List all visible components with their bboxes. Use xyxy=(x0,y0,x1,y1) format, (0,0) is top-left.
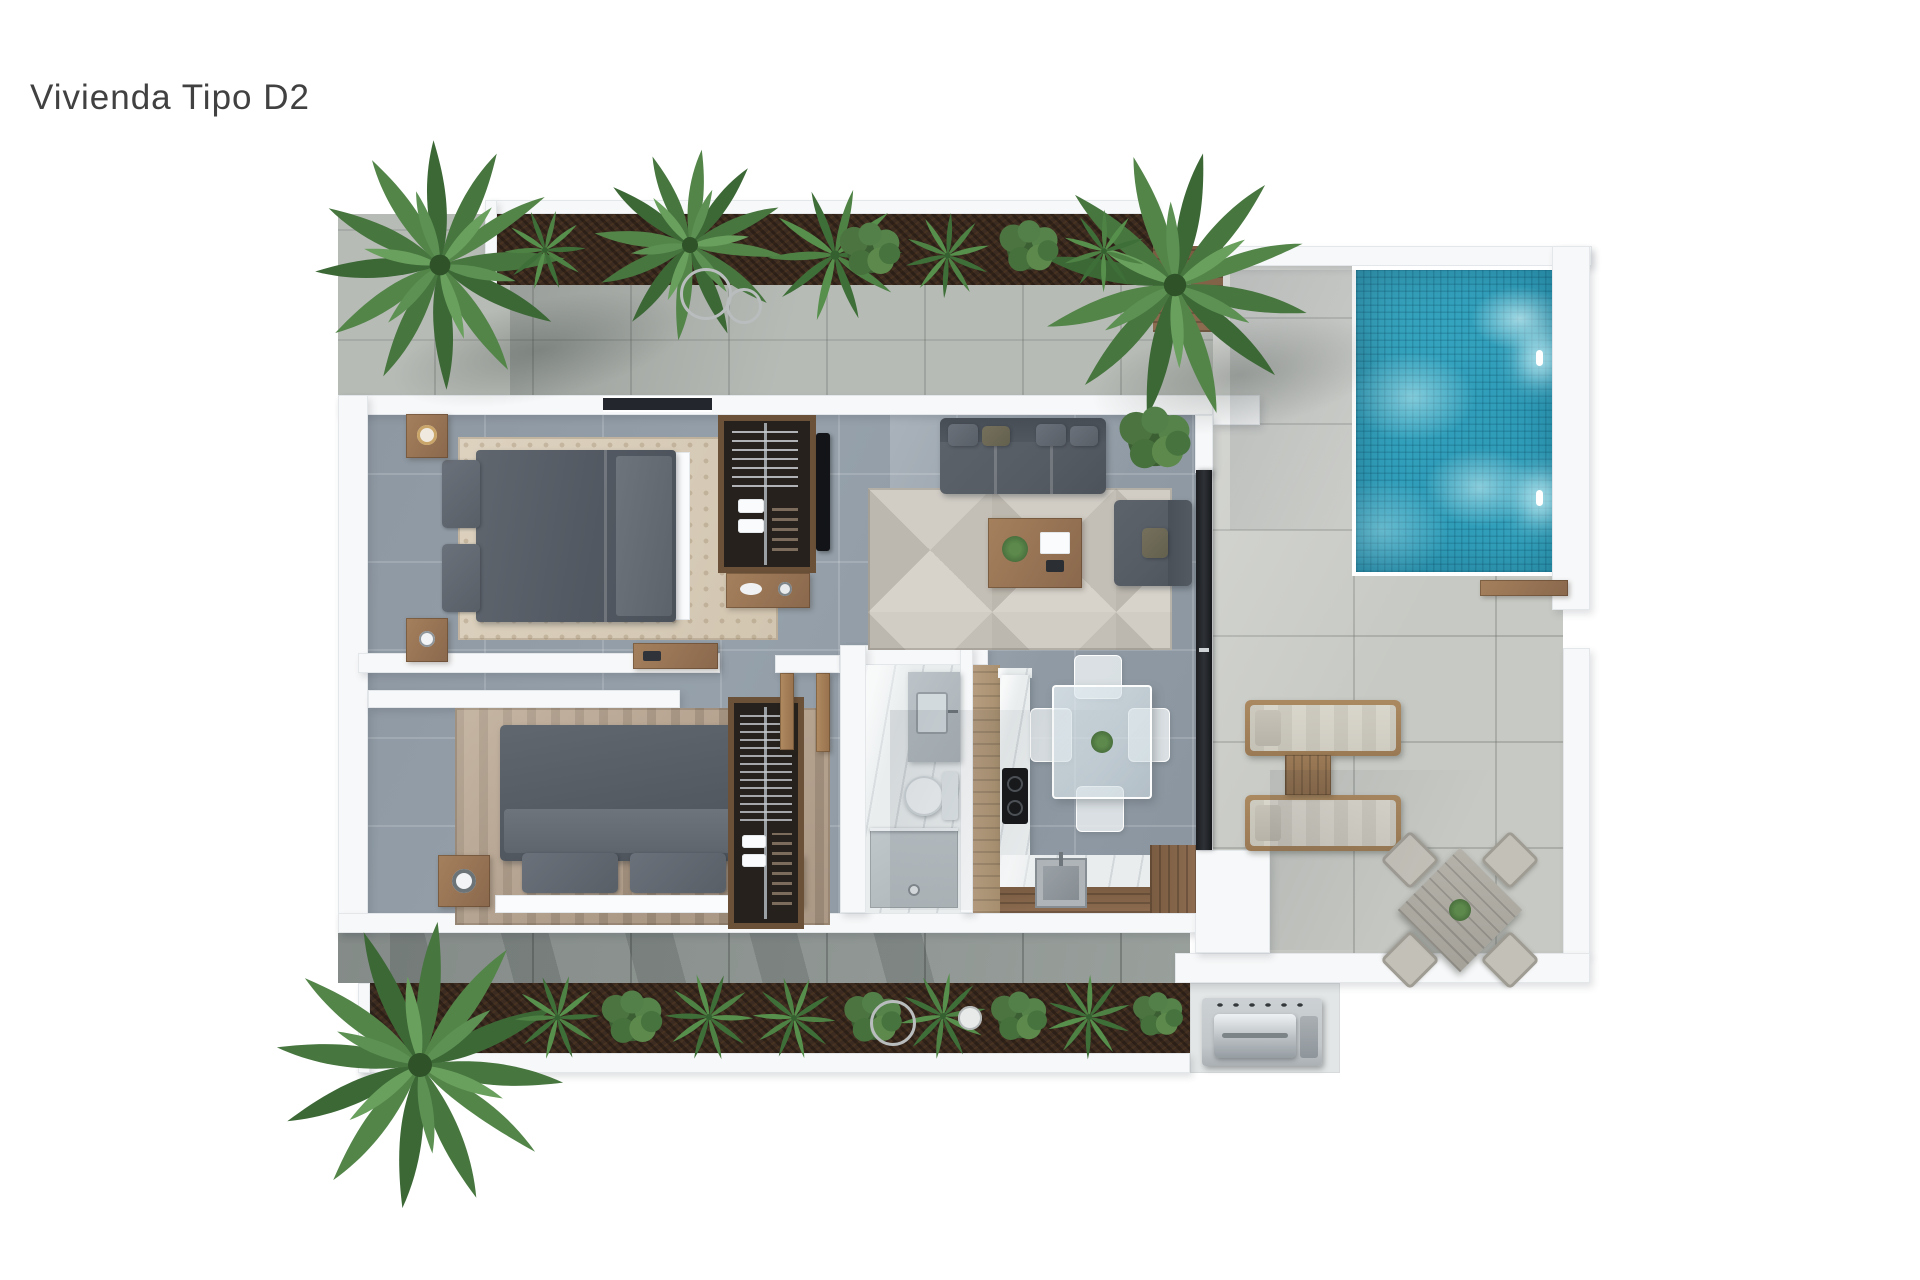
folded-towels xyxy=(738,519,764,533)
toilet-bowl xyxy=(904,776,944,816)
sun-lounger[interactable] xyxy=(1245,700,1401,756)
shrub xyxy=(1125,982,1191,1048)
pool-right-wall xyxy=(1552,246,1590,610)
pool-bench xyxy=(1480,580,1568,596)
kitchen-counter-end xyxy=(1150,845,1196,913)
bbq-lid xyxy=(1214,1014,1296,1058)
bathroom-vanity xyxy=(908,672,960,762)
bedroom1-window xyxy=(603,396,712,412)
bbq-handle xyxy=(1222,1033,1288,1038)
armchair xyxy=(1114,500,1192,586)
bed-duvet xyxy=(476,450,676,622)
sun-lounger[interactable] xyxy=(1245,795,1401,851)
sliding-glass-door[interactable] xyxy=(1196,470,1212,850)
sofa-pillow xyxy=(1036,424,1066,446)
bathroom-left-wall xyxy=(840,645,866,913)
nightstand xyxy=(406,414,448,458)
armchair-pillow xyxy=(1142,528,1168,558)
hall-bedroom2-wall xyxy=(368,690,680,708)
faucet xyxy=(1059,852,1063,866)
book xyxy=(1040,532,1070,554)
swimming-pool xyxy=(1352,266,1560,576)
wall-console xyxy=(633,643,718,669)
shower-glass xyxy=(870,828,958,831)
pool-light xyxy=(1536,490,1543,506)
folded-towels xyxy=(742,835,766,848)
sink-basin xyxy=(916,692,948,734)
sofa xyxy=(940,418,1106,494)
coffee-table xyxy=(988,518,1082,588)
bathroom-right-wall xyxy=(960,645,973,913)
armchair-back xyxy=(1168,500,1192,586)
folded-towels xyxy=(738,499,764,513)
bedroom1-bed xyxy=(442,450,692,622)
sliding-door-handle[interactable] xyxy=(1199,648,1209,652)
bbq-knobs xyxy=(1212,1000,1312,1010)
sofa-pillow xyxy=(982,426,1010,446)
door-jamb xyxy=(775,655,840,673)
desk-cup xyxy=(778,582,792,596)
coffee-table-plant xyxy=(1002,536,1028,562)
desk-dish xyxy=(740,583,762,595)
door-leaf[interactable] xyxy=(816,673,830,752)
toilet xyxy=(904,770,960,822)
garden-hose-ring xyxy=(680,268,732,320)
lounger-side-table xyxy=(1285,755,1331,795)
closet-shelves xyxy=(772,501,798,551)
bed-duvet xyxy=(500,725,750,861)
bbq-side-shelf xyxy=(1300,1016,1318,1058)
folded-towels xyxy=(742,854,766,867)
wardrobe-bedroom1 xyxy=(718,415,816,573)
bed-headboard xyxy=(495,895,755,913)
kitchen-sink xyxy=(1035,858,1087,908)
bed-pillow xyxy=(630,853,726,893)
sofa-pillow xyxy=(1070,426,1098,446)
faucet xyxy=(948,710,958,713)
lounger-headrest xyxy=(1255,710,1281,746)
garden-hose-ring xyxy=(726,288,762,324)
nightstand xyxy=(406,618,448,662)
bed-fold xyxy=(504,809,746,853)
dining-table xyxy=(1052,685,1152,799)
cooktop xyxy=(1002,768,1028,824)
console-decor xyxy=(643,651,661,661)
sink-basin xyxy=(1043,866,1079,900)
fiddle-leaf-plant xyxy=(1105,392,1205,486)
door-leaf[interactable] xyxy=(780,673,794,750)
shower-drain xyxy=(908,884,920,896)
corner-wall-block xyxy=(1195,850,1270,953)
decor-tray xyxy=(1046,560,1064,572)
lounger-headrest xyxy=(1255,805,1281,841)
fern-plant xyxy=(510,970,605,1065)
garden-hose-ring xyxy=(870,1000,916,1046)
dresser-desk xyxy=(726,573,810,608)
table-plant xyxy=(1444,894,1475,925)
kitchen-wood-floor xyxy=(973,665,1000,913)
shower-area xyxy=(870,828,958,908)
table-plant xyxy=(1091,731,1113,753)
outdoor-dining-set xyxy=(1385,835,1535,985)
burner xyxy=(1007,800,1023,816)
hanging-clothes xyxy=(732,427,798,487)
terrace-right-wall xyxy=(1563,648,1590,955)
pool-light xyxy=(1536,350,1543,366)
bbq-grill[interactable] xyxy=(1202,998,1322,1066)
bed-throw xyxy=(616,456,672,616)
toilet-tank xyxy=(942,772,958,820)
bed-pillow xyxy=(442,544,480,612)
burner xyxy=(1007,776,1023,792)
tv-panel xyxy=(816,433,830,551)
floor-plan xyxy=(330,150,1600,1220)
closet-shelves xyxy=(772,833,792,905)
bedroom2-bed xyxy=(500,725,750,915)
table-lamp xyxy=(417,425,437,445)
fern-plant xyxy=(500,205,590,295)
bed-footboard xyxy=(674,452,690,620)
plan-title: Vivienda Tipo D2 xyxy=(30,78,310,118)
bed-pillow xyxy=(522,853,618,893)
sofa-pillow xyxy=(948,424,978,446)
planter-pot xyxy=(958,1006,982,1030)
page: { "title": "Vivienda Tipo D2", "colors":… xyxy=(0,0,1920,1280)
candle xyxy=(419,631,435,647)
bed-pillow xyxy=(442,460,480,528)
